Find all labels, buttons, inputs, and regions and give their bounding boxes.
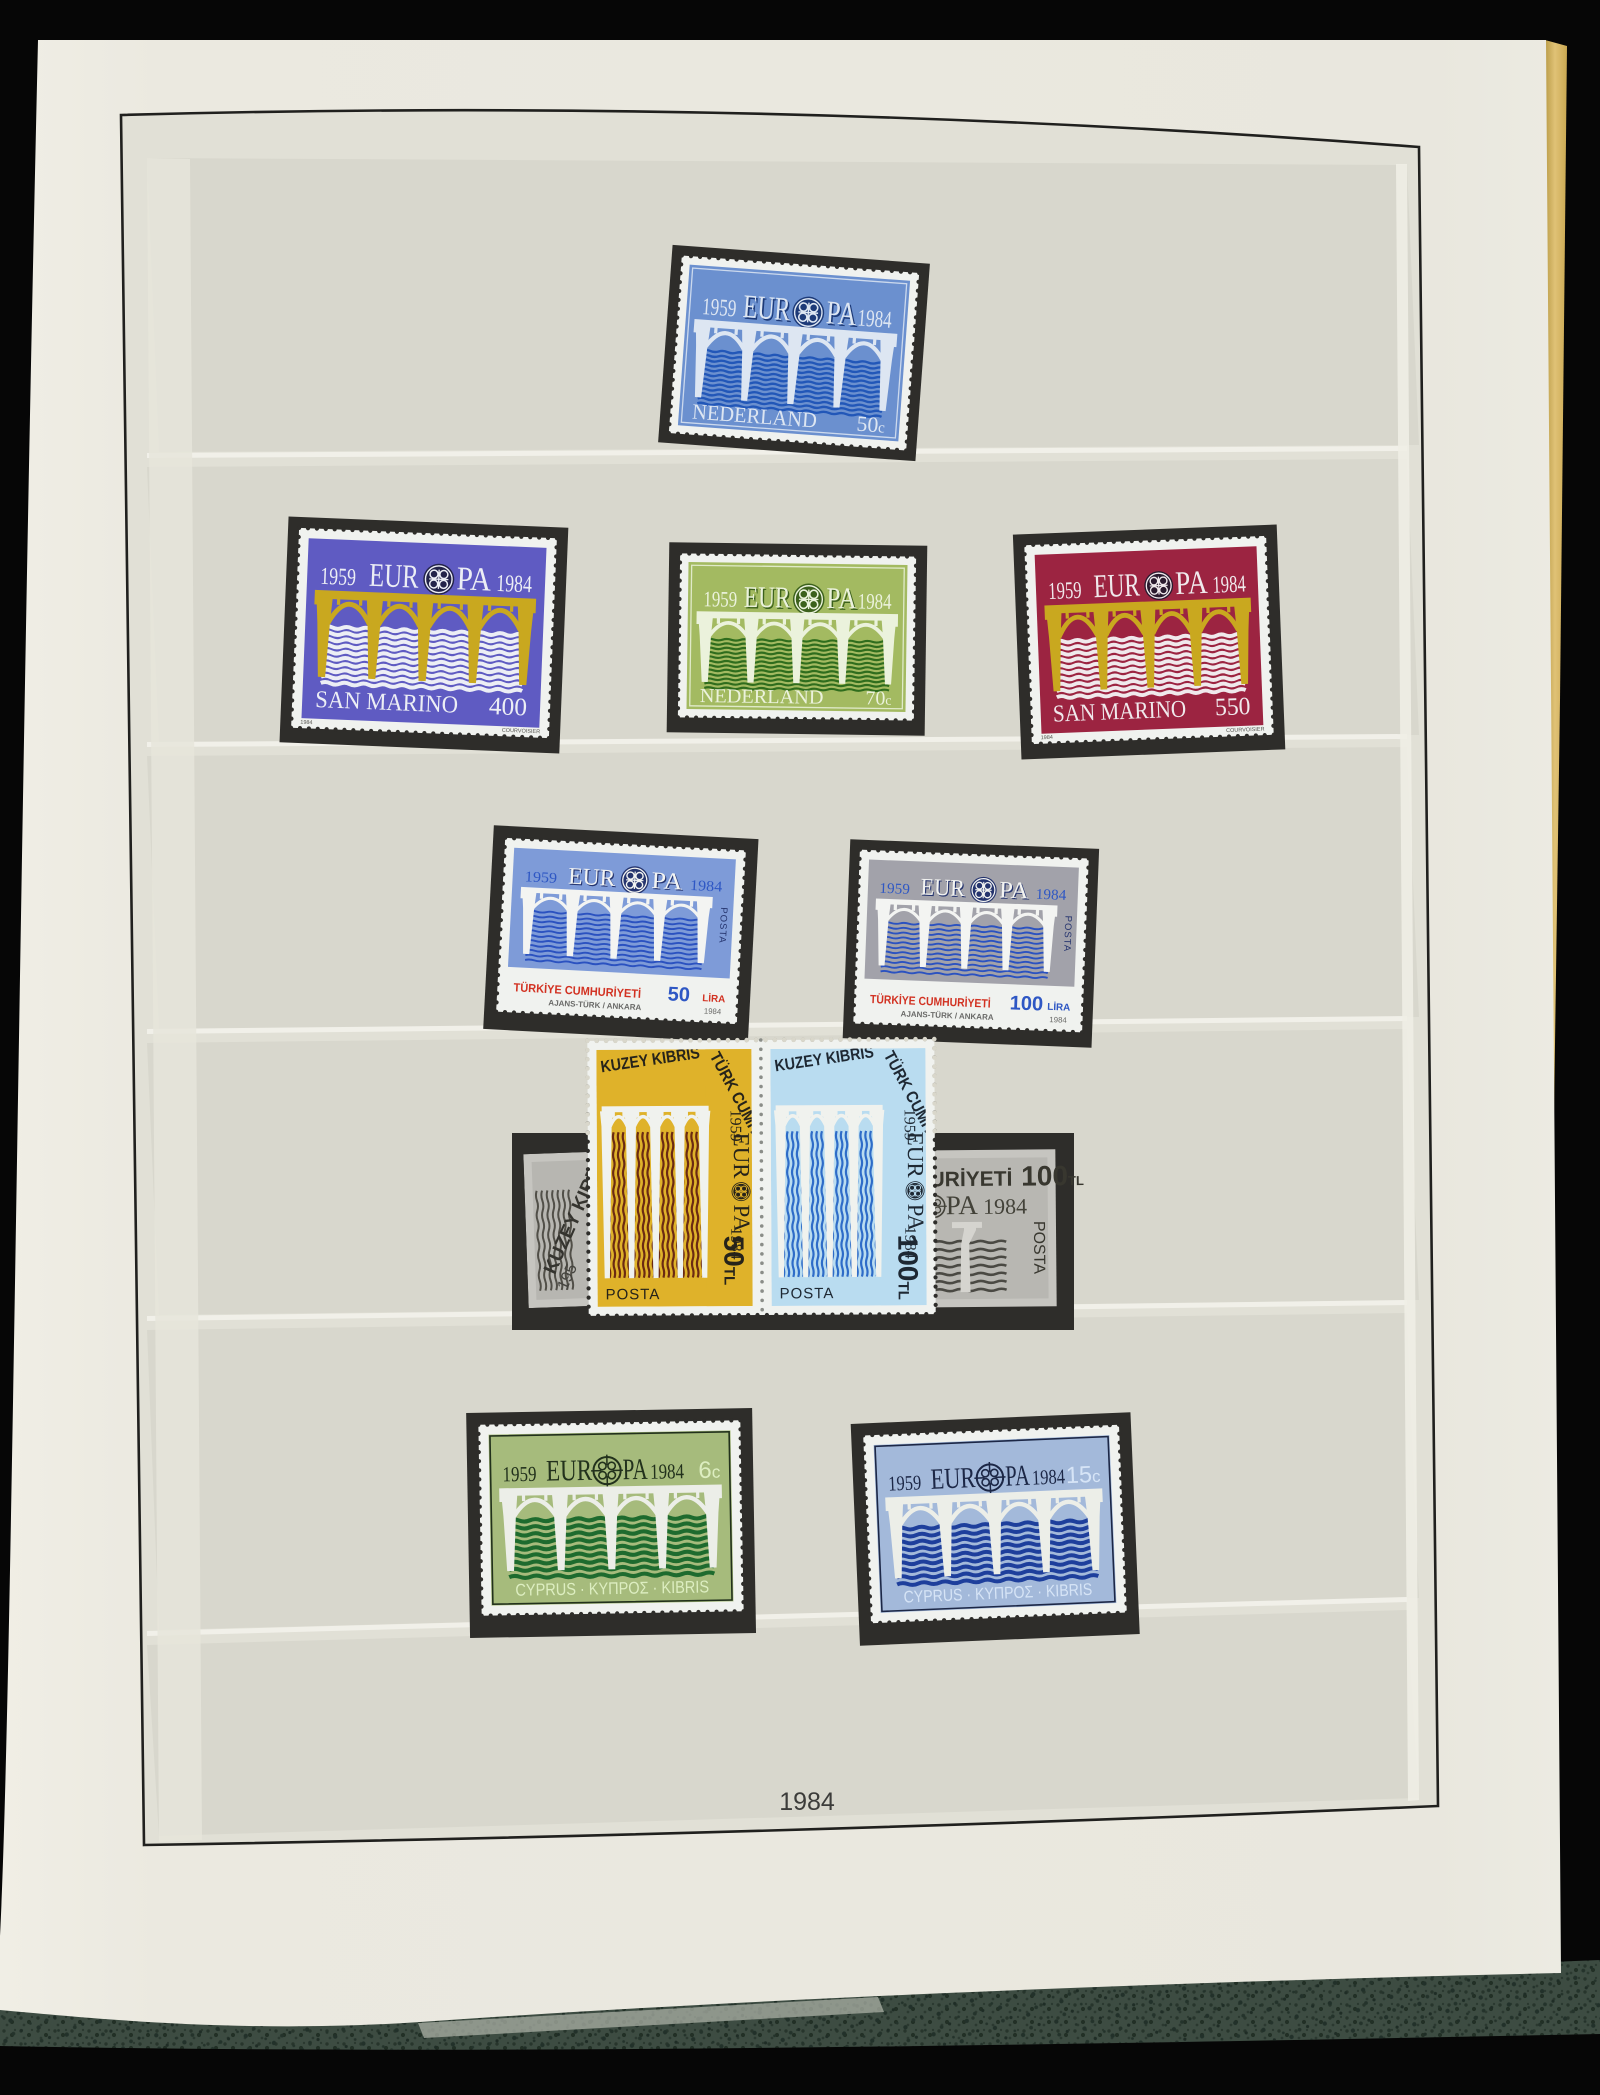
svg-text:PA: PA [651,868,684,896]
svg-text:PA: PA [622,1453,648,1486]
svg-text:POSTA: POSTA [1030,1221,1047,1275]
svg-text:1959: 1959 [320,563,357,591]
svg-text:1984: 1984 [1212,570,1246,598]
svg-text:400: 400 [488,693,527,722]
svg-text:1959: 1959 [701,294,737,322]
svg-text:PA: PA [1005,1460,1031,1493]
svg-text:EUR: EUR [930,1462,976,1496]
svg-text:POSTA: POSTA [1061,915,1073,952]
svg-text:1959: 1959 [1048,577,1082,605]
svg-text:1959: 1959 [888,1470,922,1495]
svg-text:1984: 1984 [704,1006,722,1016]
svg-text:NEDERLAND: NEDERLAND [700,685,824,709]
svg-text:POSTA: POSTA [606,1286,661,1303]
svg-text:1984: 1984 [1031,1464,1065,1489]
svg-text:1984: 1984 [858,588,892,613]
svg-text:1984: 1984 [779,1788,835,1816]
svg-text:LİRA: LİRA [702,993,726,1005]
svg-text:EUR: EUR [744,580,792,615]
svg-text:PA: PA [826,581,857,615]
svg-text:EUR: EUR [1093,568,1141,606]
svg-text:1984: 1984 [1041,735,1053,741]
svg-text:1959: 1959 [879,881,910,898]
svg-text:PA: PA [1175,565,1209,602]
svg-text:EUR: EUR [729,1133,754,1180]
svg-text:PA: PA [999,877,1030,904]
svg-text:EUR: EUR [903,1132,928,1179]
svg-text:1984: 1984 [300,720,312,726]
svg-text:50: 50 [667,983,690,1006]
svg-text:EUR: EUR [368,557,420,596]
svg-text:1984: 1984 [1036,887,1068,904]
svg-text:100: 100 [1009,992,1043,1015]
svg-text:PA: PA [456,560,492,598]
svg-text:550: 550 [1214,693,1251,721]
svg-text:1959: 1959 [502,1462,536,1487]
svg-text:EUR: EUR [546,1454,593,1488]
svg-text:SAN MARINO: SAN MARINO [315,686,459,719]
svg-text:1984: 1984 [690,878,724,896]
svg-text:1984: 1984 [1049,1015,1067,1025]
svg-text:1984: 1984 [857,305,893,333]
svg-text:EUR: EUR [920,874,966,902]
svg-text:PA 1984: PA 1984 [946,1190,1028,1221]
svg-text:CYPRUS · ΚΥΠΡΟΣ · KIBRIS: CYPRUS · ΚΥΠΡΟΣ · KIBRIS [515,1577,709,1599]
svg-text:POSTA: POSTA [780,1285,835,1302]
svg-text:SAN MARINO: SAN MARINO [1052,696,1186,728]
svg-text:EUR: EUR [742,289,792,328]
svg-text:1984: 1984 [496,570,533,598]
svg-text:1984: 1984 [650,1459,685,1484]
svg-text:6c: 6c [698,1457,721,1484]
svg-text:LİRA: LİRA [1047,1002,1070,1014]
svg-text:PA: PA [825,295,858,333]
svg-text:POSTA: POSTA [716,907,729,944]
svg-text:1959: 1959 [703,586,737,611]
svg-text:1959: 1959 [524,869,557,887]
svg-text:EUR: EUR [568,863,617,891]
